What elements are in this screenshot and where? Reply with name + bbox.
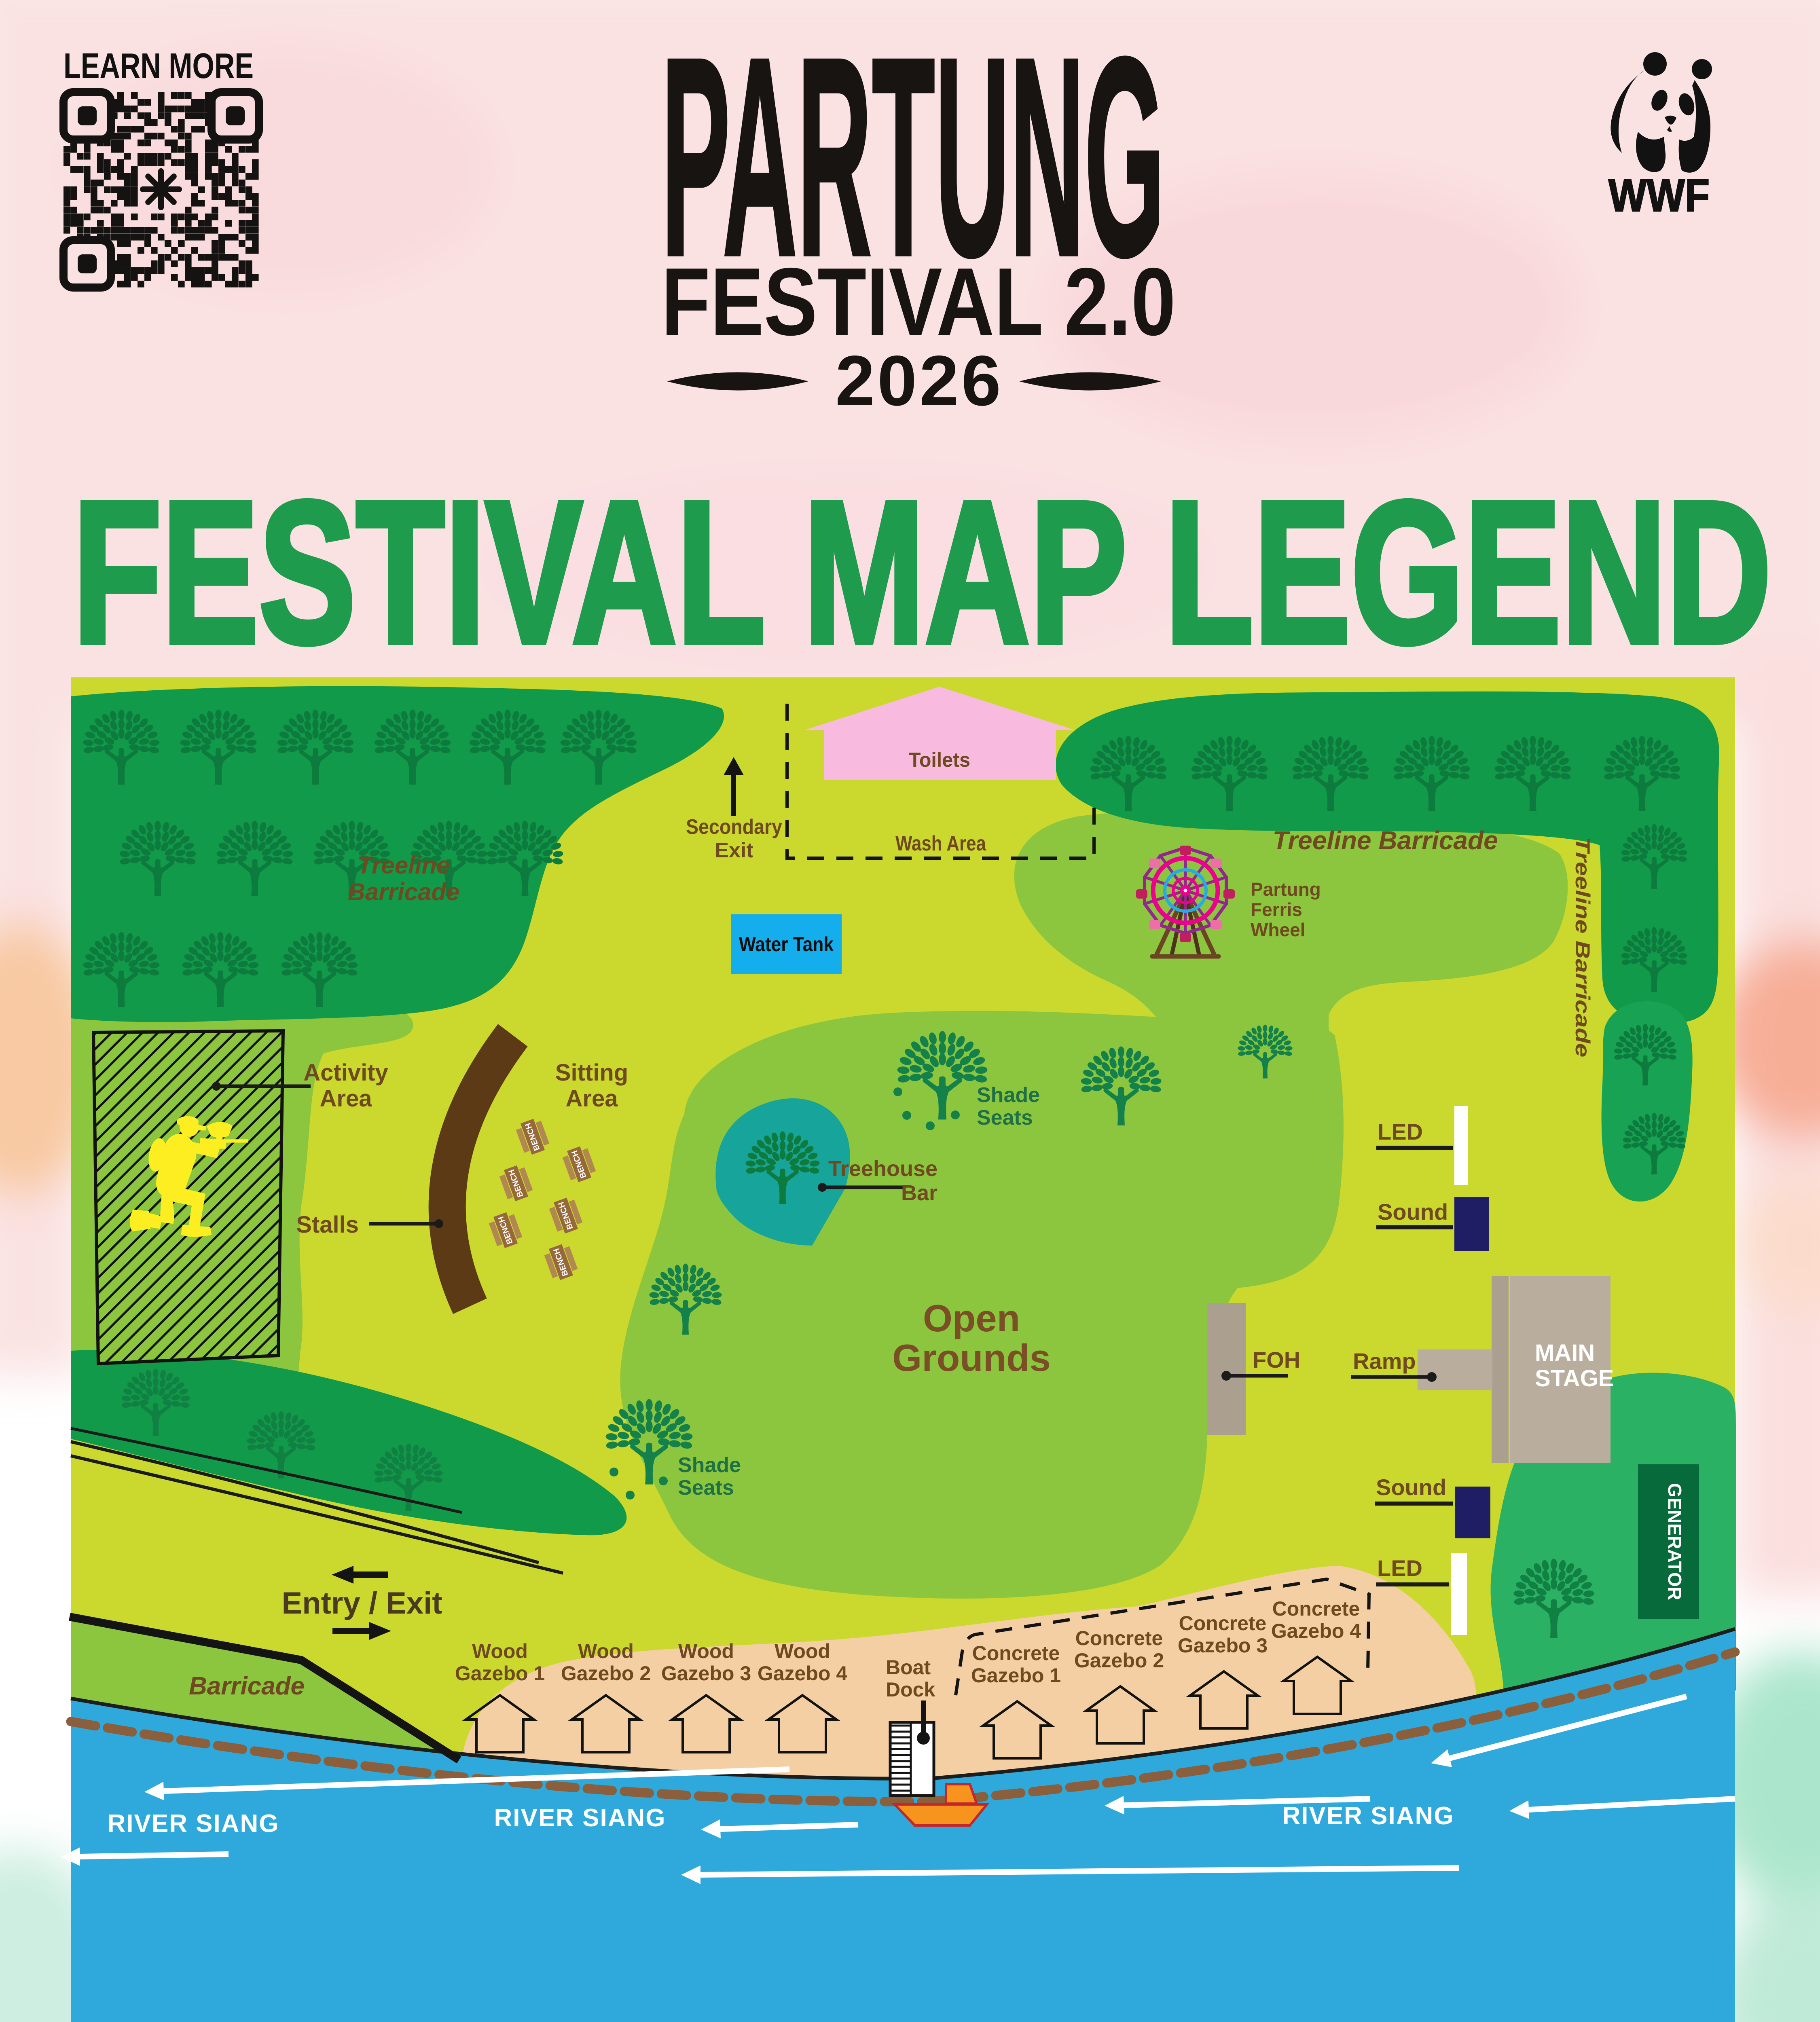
svg-text:Gazebo 4: Gazebo 4 [1271, 1620, 1361, 1642]
svg-text:Dock: Dock [886, 1678, 935, 1701]
svg-text:Seats: Seats [977, 1106, 1033, 1129]
svg-text:Shade: Shade [678, 1453, 741, 1477]
svg-text:STAGE: STAGE [1535, 1365, 1614, 1392]
svg-text:LED: LED [1377, 1555, 1422, 1581]
svg-text:LED: LED [1378, 1119, 1423, 1144]
svg-text:Treehouse: Treehouse [828, 1157, 938, 1181]
svg-text:Sound: Sound [1376, 1474, 1446, 1500]
svg-text:Grounds: Grounds [892, 1337, 1051, 1379]
svg-text:Sitting: Sitting [555, 1060, 628, 1086]
svg-text:Concrete: Concrete [972, 1642, 1060, 1665]
svg-text:Concrete: Concrete [1075, 1627, 1163, 1650]
svg-text:Gazebo 3: Gazebo 3 [1178, 1634, 1268, 1657]
svg-text:Open: Open [923, 1297, 1020, 1339]
svg-text:MAIN: MAIN [1535, 1340, 1595, 1366]
svg-text:Barricade: Barricade [189, 1672, 305, 1700]
svg-text:WWF: WWF [1608, 170, 1710, 221]
svg-text:Gazebo 2: Gazebo 2 [1074, 1649, 1164, 1672]
svg-text:Concrete: Concrete [1272, 1597, 1360, 1620]
svg-text:Area: Area [320, 1085, 372, 1112]
svg-text:Exit: Exit [715, 839, 753, 862]
svg-text:2026: 2026 [835, 341, 1003, 421]
svg-text:FOH: FOH [1253, 1347, 1300, 1373]
svg-text:Wood: Wood [775, 1640, 830, 1662]
svg-text:Wheel: Wheel [1251, 919, 1305, 940]
svg-text:Gazebo 1: Gazebo 1 [971, 1664, 1061, 1687]
svg-text:Water Tank: Water Tank [739, 933, 834, 956]
svg-text:Wood: Wood [472, 1640, 528, 1662]
svg-text:Ferris: Ferris [1251, 899, 1302, 920]
svg-text:Secondary: Secondary [686, 815, 782, 839]
svg-text:Concrete: Concrete [1179, 1612, 1267, 1635]
svg-text:Treeline Barricade: Treeline Barricade [1571, 837, 1594, 1058]
svg-text:Wash Area: Wash Area [895, 832, 986, 855]
svg-text:FESTIVAL MAP LEGEND: FESTIVAL MAP LEGEND [73, 459, 1771, 685]
svg-text:Gazebo 1: Gazebo 1 [455, 1662, 545, 1685]
svg-text:RIVER SIANG: RIVER SIANG [494, 1804, 666, 1832]
svg-text:Wood: Wood [578, 1640, 634, 1662]
svg-text:Entry / Exit: Entry / Exit [282, 1586, 442, 1620]
svg-text:Bar: Bar [901, 1181, 938, 1205]
svg-text:Activity: Activity [303, 1060, 388, 1086]
svg-text:Gazebo 2: Gazebo 2 [561, 1662, 651, 1685]
svg-text:RIVER SIANG: RIVER SIANG [107, 1810, 279, 1838]
svg-text:FESTIVAL 2.0: FESTIVAL 2.0 [661, 248, 1176, 355]
svg-text:Partung: Partung [1251, 879, 1321, 900]
svg-text:GENERATOR: GENERATOR [1664, 1483, 1685, 1600]
svg-text:Shade: Shade [977, 1083, 1040, 1107]
svg-text:Toilets: Toilets [909, 749, 970, 771]
svg-text:Stalls: Stalls [296, 1212, 359, 1238]
svg-text:Seats: Seats [678, 1476, 734, 1500]
svg-text:Gazebo 4: Gazebo 4 [758, 1662, 847, 1685]
svg-text:Treeline Barricade: Treeline Barricade [1272, 826, 1498, 855]
svg-text:Boat: Boat [886, 1656, 931, 1679]
svg-text:Gazebo 3: Gazebo 3 [661, 1662, 751, 1685]
svg-text:Ramp: Ramp [1353, 1348, 1416, 1374]
svg-text:Wood: Wood [678, 1640, 734, 1662]
svg-text:Treeline: Treeline [357, 852, 450, 879]
svg-text:Sound: Sound [1378, 1199, 1448, 1225]
svg-text:LEARN MORE: LEARN MORE [63, 46, 254, 86]
svg-text:Area: Area [566, 1085, 618, 1112]
svg-text:RIVER SIANG: RIVER SIANG [1282, 1802, 1454, 1830]
svg-text:Barricade: Barricade [348, 878, 460, 905]
